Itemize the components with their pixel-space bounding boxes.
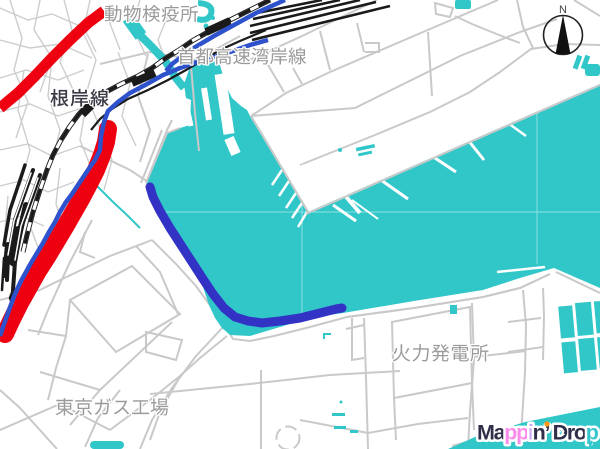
svg-text:Mappin’ Drop: Mappin’ Drop xyxy=(477,421,599,445)
svg-text:N: N xyxy=(559,4,567,16)
